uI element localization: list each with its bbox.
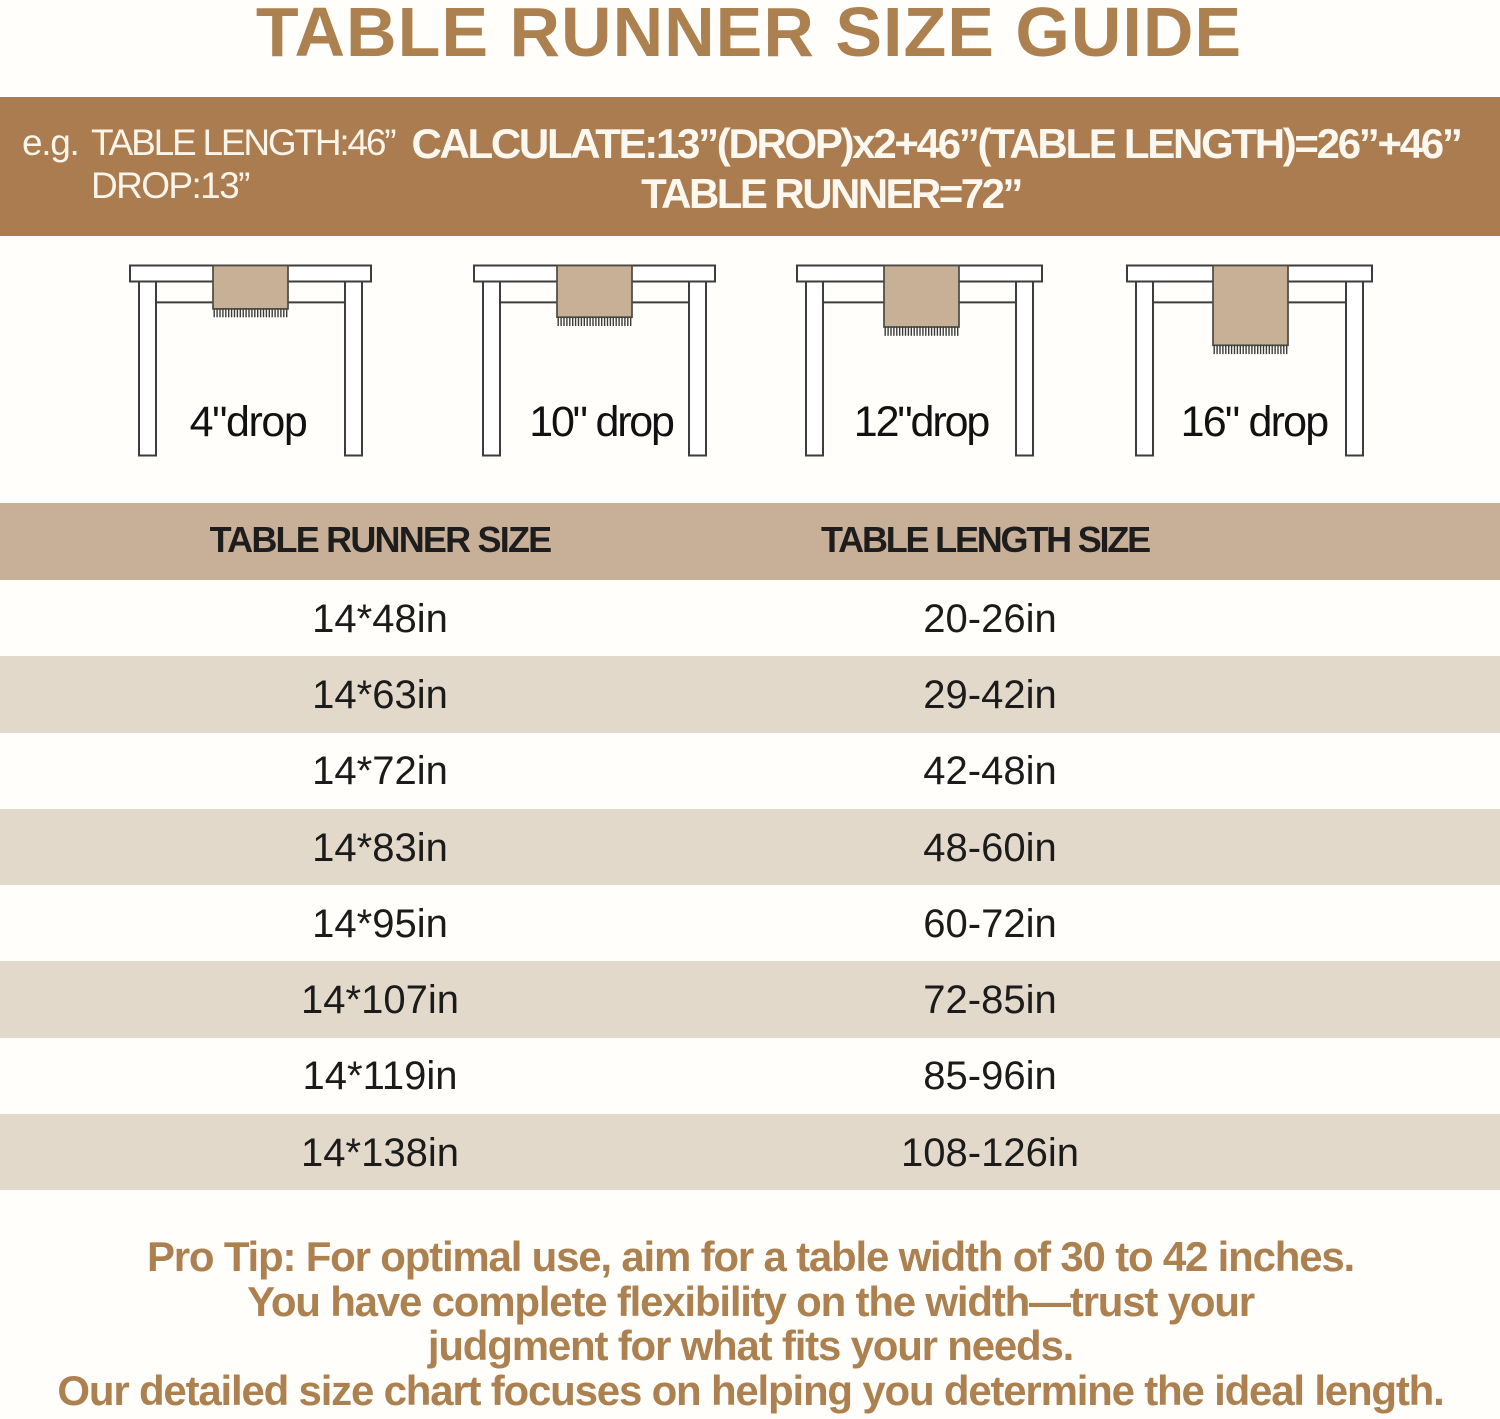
svg-text:4"drop: 4"drop <box>190 398 307 446</box>
svg-text:10" drop: 10" drop <box>529 398 674 446</box>
svg-text:12"drop: 12"drop <box>854 398 990 446</box>
svg-text:16" drop: 16" drop <box>1181 398 1329 446</box>
